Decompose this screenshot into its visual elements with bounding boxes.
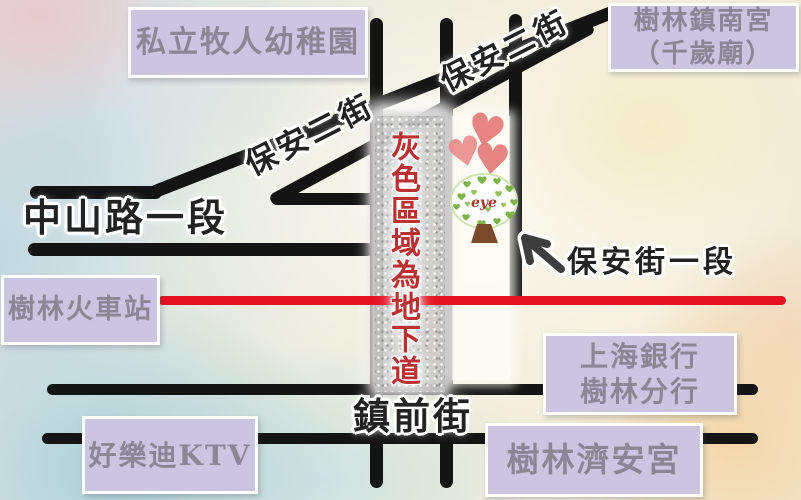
place-train-station-label: 樹林火車站 bbox=[8, 293, 153, 327]
underpass-note: 灰色區域為地下道 bbox=[387, 131, 417, 387]
road-zhongshan-main bbox=[28, 243, 374, 256]
railway-line bbox=[158, 296, 786, 305]
hand-drawn-location-map: 灰色區域為地下道 保安二街 保安二街 中山路一段 保安街一段 鎮前街 ♥ ♥ ♥ bbox=[0, 0, 801, 500]
street-label-baoan1: 保安街一段 bbox=[567, 248, 737, 278]
place-temple-north-line2: （千歲廟） bbox=[633, 38, 773, 71]
place-temple-north-line1: 樹林鎮南宮 bbox=[633, 5, 773, 38]
place-kindergarten: 私立牧人幼稚園 bbox=[128, 7, 368, 78]
place-temple-jian-label: 樹林濟安宮 bbox=[507, 439, 682, 480]
road-mid-connector bbox=[271, 193, 381, 205]
place-train-station: 樹林火車站 bbox=[1, 275, 160, 345]
tree-eye-text: eye bbox=[471, 195, 497, 211]
place-ktv-label: 好樂迪KTV bbox=[89, 438, 252, 473]
place-ktv: 好樂迪KTV bbox=[82, 416, 258, 494]
arrow-up-left-icon bbox=[515, 231, 569, 277]
place-bank-line2: 樹林分行 bbox=[580, 374, 700, 409]
street-label-zhongshan: 中山路一段 bbox=[23, 199, 228, 237]
tree-icon: eye bbox=[448, 172, 520, 246]
place-bank-line1: 上海銀行 bbox=[580, 339, 700, 374]
place-bank: 上海銀行 樹林分行 bbox=[543, 333, 737, 415]
place-kindergarten-label: 私立牧人幼稚園 bbox=[136, 24, 360, 62]
place-temple-jian: 樹林濟安宮 bbox=[485, 423, 703, 497]
place-temple-north: 樹林鎮南宮 （千歲廟） bbox=[608, 3, 799, 72]
street-label-zhenqian: 鎮前街 bbox=[353, 398, 473, 435]
street-label-baoan2-lower: 保安二街 bbox=[241, 90, 380, 181]
